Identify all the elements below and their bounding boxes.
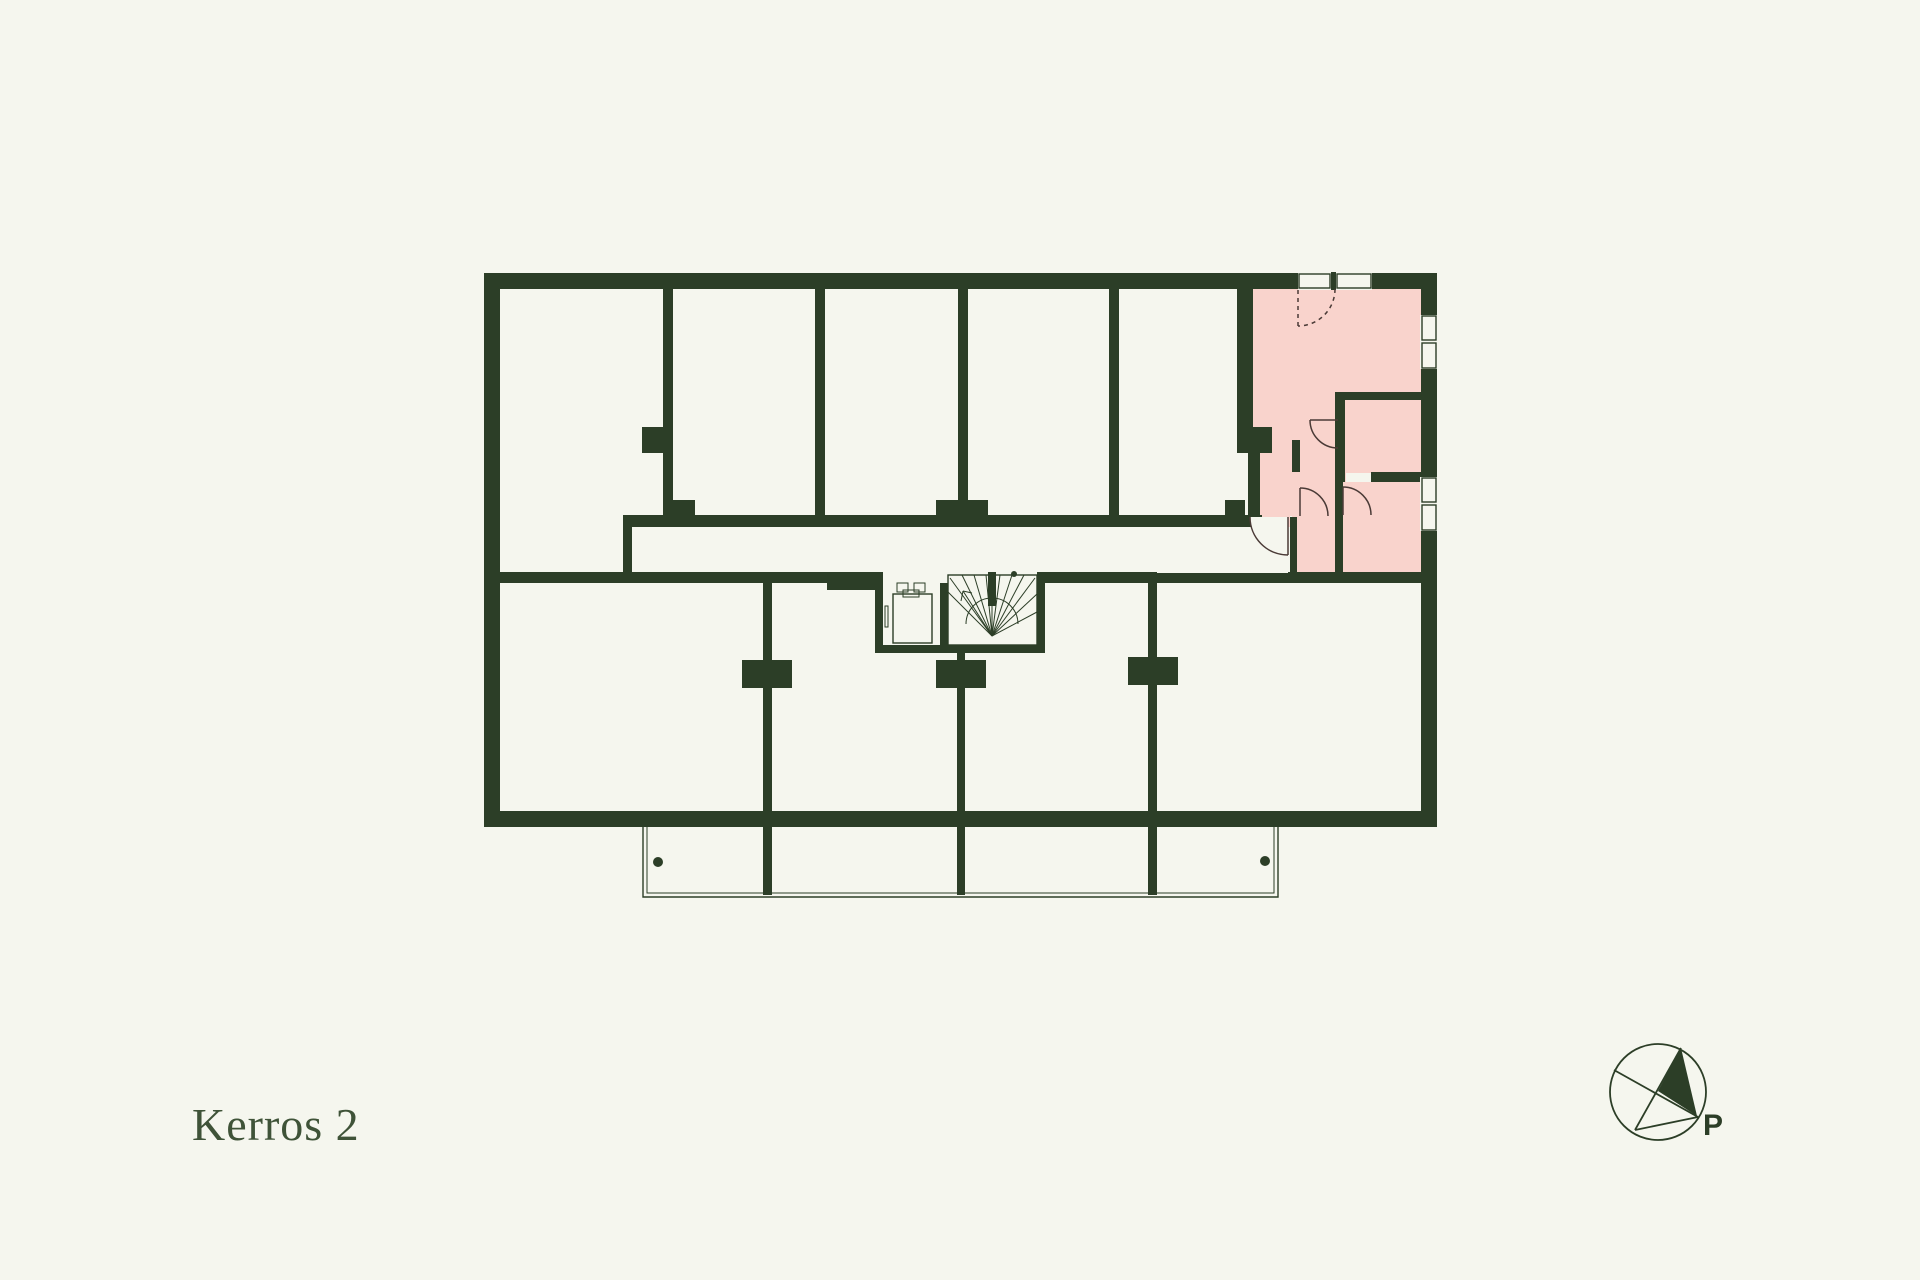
interior-walls-top [642,289,1272,527]
balcony-column-left [653,857,663,867]
floor-plan: P [0,0,1920,1280]
stair-start-dot [1011,571,1017,577]
window-right-upper [1420,315,1438,369]
balconies [643,827,1278,897]
window-right-lower [1420,477,1438,531]
north-arrow: P [1610,1044,1723,1142]
floor-title: Kerros 2 [192,1098,360,1151]
elevator [885,583,932,643]
apartment-entry-opening [1298,272,1372,290]
floor-plan-page: P Kerros 2 [0,0,1920,1280]
balcony-column-right [1260,856,1270,866]
stairwell [948,571,1037,645]
north-label: P [1703,1109,1723,1142]
interior-walls-bottom [742,572,1178,811]
